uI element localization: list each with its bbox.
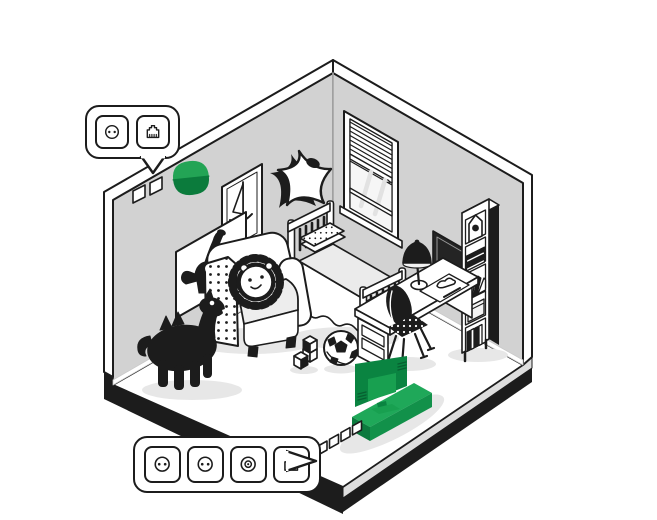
armchair-leg xyxy=(286,336,296,348)
wall-callout-pointer xyxy=(138,156,168,176)
ethernet-socket-icon xyxy=(136,115,170,149)
wall-sockets-callout xyxy=(85,105,180,159)
power-socket-icon xyxy=(95,115,129,149)
armchair-leg xyxy=(248,346,258,357)
kids-room-illustration xyxy=(0,0,657,520)
coax-socket-icon xyxy=(230,446,267,483)
power-socket-icon xyxy=(144,446,181,483)
wall-sockets-callout-icons xyxy=(95,115,170,149)
lion-pillow xyxy=(232,258,280,306)
isometric-room-scene xyxy=(0,0,657,520)
floor-callout-pointer xyxy=(286,448,320,474)
power-socket-icon xyxy=(187,446,224,483)
soccer-ball xyxy=(324,331,358,365)
